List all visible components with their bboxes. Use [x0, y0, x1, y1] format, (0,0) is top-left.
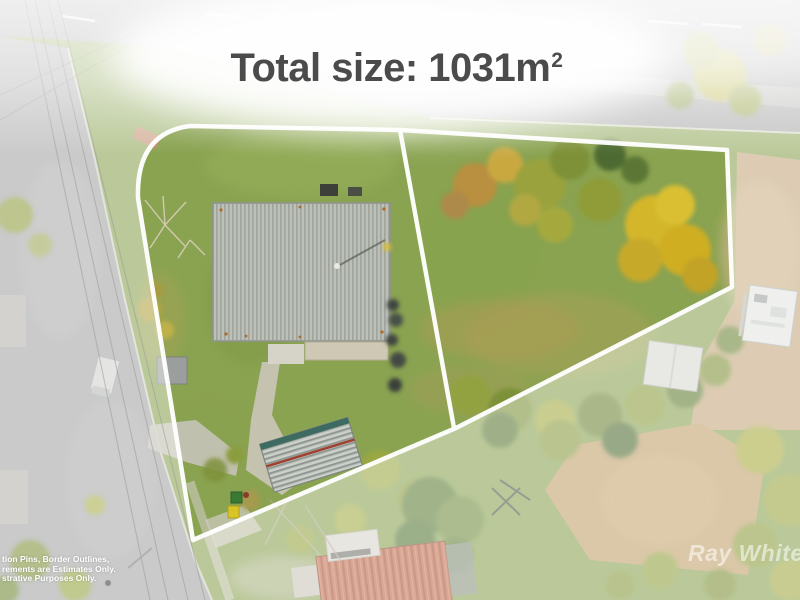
- dead-tree-twigs: [145, 196, 205, 258]
- total-size-text: Total size: 1031m: [231, 46, 551, 90]
- total-size-superscript: 2: [551, 49, 562, 72]
- disclaimer: tion Pins, Border Outlines, rements are …: [2, 555, 116, 584]
- concrete-pad: [268, 344, 304, 364]
- patio-roof: [305, 342, 388, 360]
- disclaimer-line-3: strative Purposes Only.: [2, 574, 116, 584]
- total-size-title: Total size: 1031m2: [0, 46, 792, 91]
- ray-white-watermark: Ray White: [688, 540, 800, 567]
- aerial-photo-scene: Total size: 1031m2 tion Pins, Border Out…: [0, 0, 800, 600]
